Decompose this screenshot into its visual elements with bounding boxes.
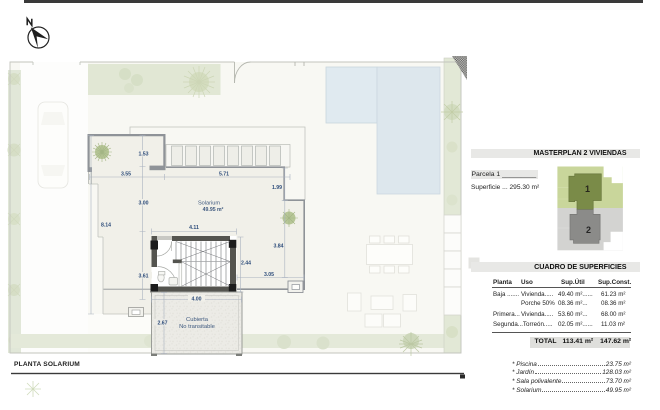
svg-text:2.44: 2.44 [241, 260, 251, 266]
svg-text:3.00: 3.00 [138, 200, 148, 206]
svg-text:3.61: 3.61 [138, 273, 148, 279]
svg-text:1.99: 1.99 [272, 185, 282, 191]
svg-text:Solarium: Solarium [198, 201, 220, 207]
svg-text:1: 1 [585, 184, 590, 194]
svg-text:3.05: 3.05 [264, 272, 274, 278]
svg-text:3.84: 3.84 [273, 243, 283, 249]
svg-text:No transitable: No transitable [179, 324, 215, 330]
svg-text:4.00: 4.00 [191, 296, 201, 302]
svg-text:3.55: 3.55 [121, 171, 131, 177]
svg-text:49.95 m²: 49.95 m² [203, 207, 224, 213]
svg-text:1.53: 1.53 [138, 151, 148, 157]
svg-text:4.11: 4.11 [189, 225, 199, 231]
svg-text:5.71: 5.71 [219, 171, 229, 177]
svg-text:2.67: 2.67 [157, 320, 167, 326]
svg-text:Cubierta: Cubierta [186, 317, 209, 323]
svg-text:2: 2 [586, 225, 591, 235]
svg-text:8.14: 8.14 [101, 222, 111, 228]
